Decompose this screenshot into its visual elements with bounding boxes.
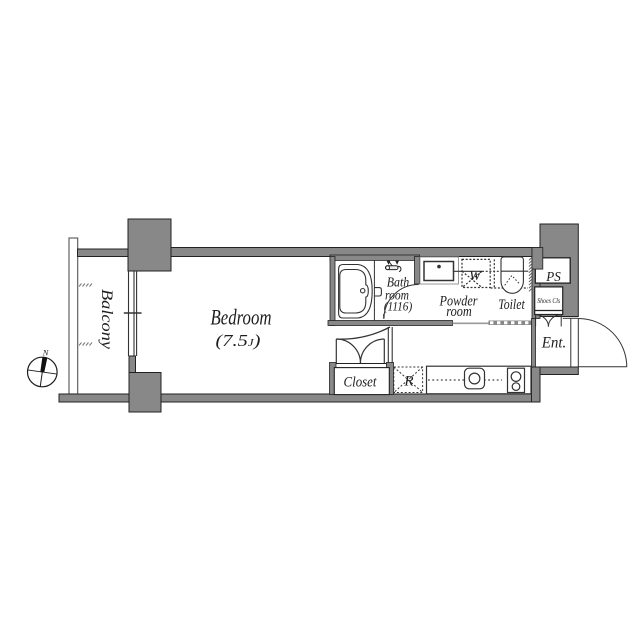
svg-text:Ent.: Ent. <box>541 335 566 352</box>
svg-text:PS: PS <box>545 270 560 285</box>
svg-text:Closet: Closet <box>344 374 378 390</box>
svg-text:room: room <box>446 304 472 320</box>
svg-text:Bedroom: Bedroom <box>211 305 272 330</box>
svg-text:R: R <box>403 374 413 390</box>
svg-text:W: W <box>469 269 482 284</box>
svg-text:Shoes Cls: Shoes Cls <box>537 297 560 305</box>
svg-text:Balcony: Balcony <box>98 289 115 350</box>
svg-text:(7.5J): (7.5J) <box>216 331 261 350</box>
svg-text:Toilet: Toilet <box>498 297 525 313</box>
